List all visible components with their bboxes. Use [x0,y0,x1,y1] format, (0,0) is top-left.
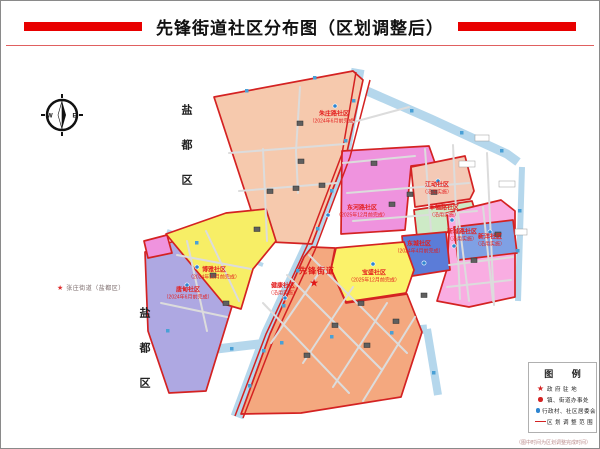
legend-item: 行政村、社区居委会 [529,405,596,416]
footnote: （图中时间为区划调整完成时间） [516,439,591,446]
community-label: 东城社区 （2024年4月前完成） [395,241,444,254]
neighbor-street-label: ★ 张庄街道（盐都区） [57,283,125,292]
title-bar: 先锋街道社区分布图（区划调整后） [1,12,599,40]
legend-box: 图 例 ★ 政 府 驻 地 镇、街道办事处 行政村、社区居委会 区 划 调 整 … [528,362,597,433]
community-note: （沿用实施） [268,291,298,297]
community-label: 唐甸社区 （2024年6月前完成） [164,287,213,300]
community-note: （2024年4月前完成） [395,249,444,255]
street-office-label: 先锋街道 [299,266,335,277]
community-note: （2025年12月前完成） [336,213,388,219]
street-office-star-icon: ★ [309,277,319,290]
community-label: 宝盛社区 （2025年12月前完成） [348,270,400,283]
community-note: （沿用实施） [475,242,505,248]
village-committee-dot-icon [534,408,542,413]
district-label-yandu-north: 盐都区 [178,104,194,209]
community-label: 新洋社区 （沿用实施） [475,234,505,247]
legend-item-label: 镇、街道办事处 [547,396,589,404]
legend-item-label: 区 划 调 整 范 围 [547,418,593,426]
community-label: 朱庄路社区 （2024年6月前完成） [310,111,359,124]
community-note: （2024年6月前完成） [310,119,359,125]
community-label: 幸福路社区 （沿用实施） [429,205,459,218]
community-note: （沿用实施） [422,190,452,196]
neighbor-star-icon: ★ [57,284,63,292]
map [1,1,600,449]
legend-item: ★ 政 府 驻 地 [529,383,596,394]
title-red-bar-right [458,22,576,31]
compass-west-letter: W [47,114,53,120]
community-label: 博雅社区 （2024年12月前完成） [188,267,240,280]
legend-item: 镇、街道办事处 [529,394,596,405]
neighbor-street-text: 张庄街道（盐都区） [66,283,125,292]
community-label: 健康社区 （沿用实施） [268,283,298,296]
community-label: 江动社区 （沿用实施） [422,182,452,195]
community-note: （2024年12月前完成） [188,275,240,281]
page-title: 先锋街道社区分布图（区划调整后） [156,14,444,39]
community-note: （2025年12月前完成） [348,278,400,284]
legend-item-label: 政 府 驻 地 [547,385,577,393]
government-star-icon: ★ [534,385,547,393]
title-red-bar-left [24,22,142,31]
page-frame: 先锋街道社区分布图（区划调整后） [0,0,600,449]
river-south-spur [427,329,438,395]
community-note: （沿用实施） [447,237,477,243]
compass-east-letter: E [73,114,77,120]
region-west-patch [144,235,172,258]
town-office-dot-icon [534,397,547,402]
legend-item-label: 行政村、社区居委会 [542,407,596,415]
legend-item: 区 划 调 整 范 围 [529,416,596,427]
adjustment-boundary-line-icon [534,421,547,422]
legend-title: 图 例 [529,367,596,380]
community-label: 新城路社区 （沿用实施） [447,229,477,242]
community-note: （2024年6月前完成） [164,295,213,301]
community-note: （沿用实施） [429,213,459,219]
community-label: 东河路社区 （2025年12月前完成） [336,205,388,218]
district-label-yandu-south: 盐都区 [136,307,152,412]
header-rule [6,45,594,46]
compass-icon: W E [39,93,85,139]
